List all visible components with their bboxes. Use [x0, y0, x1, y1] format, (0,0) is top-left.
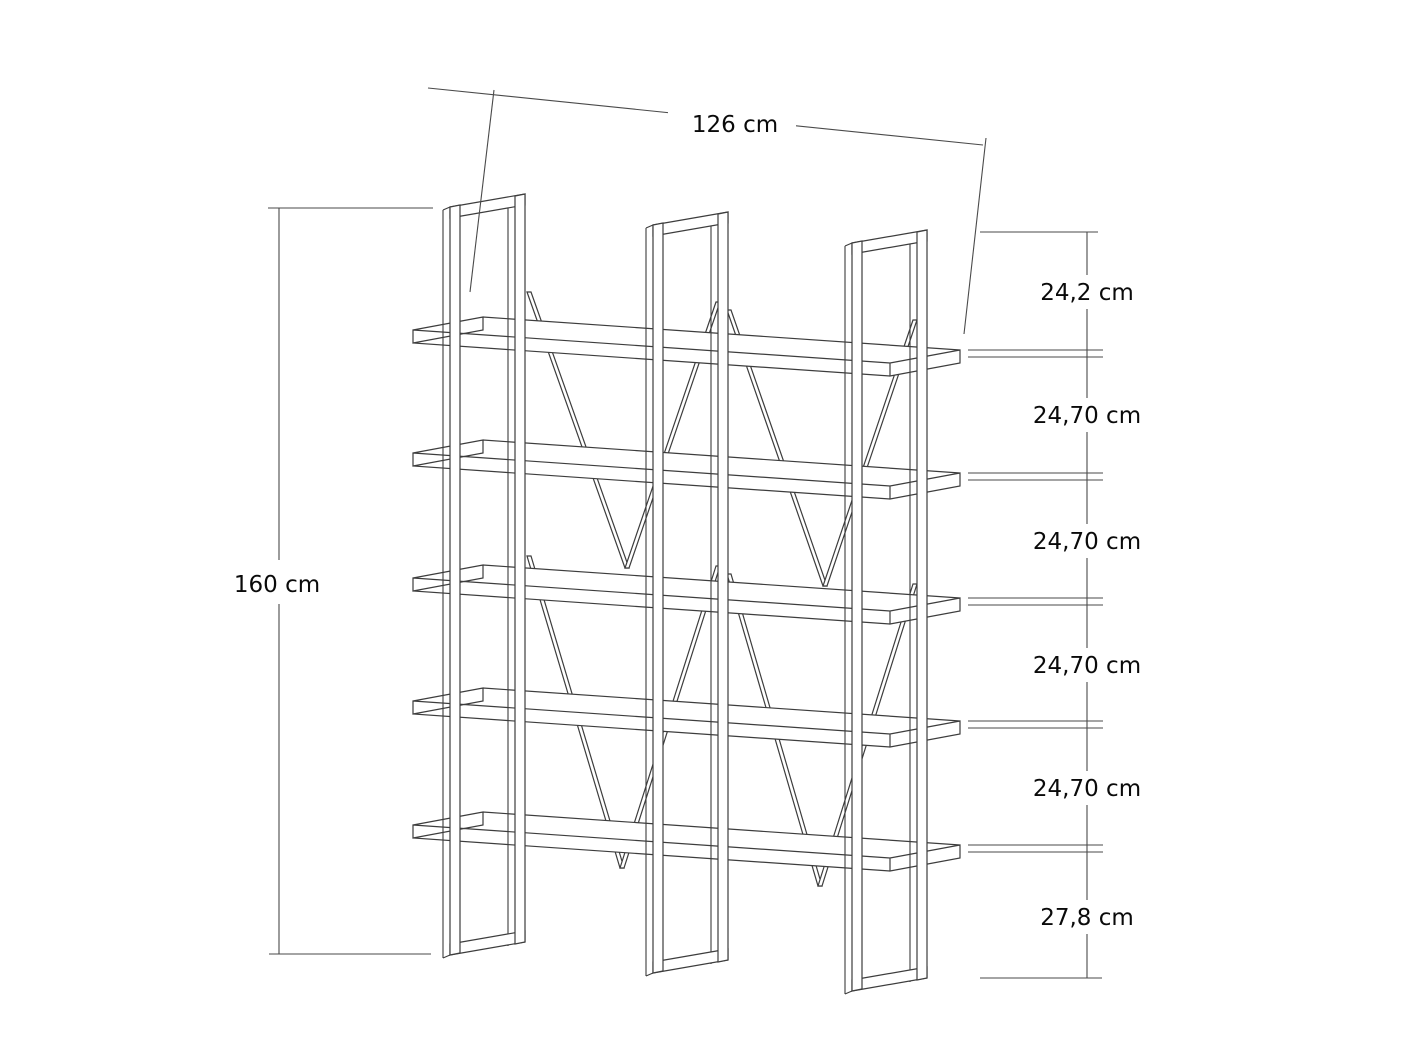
- spacing-tick-shelf2: [968, 473, 1103, 480]
- spacing-label-2: 24,70 cm: [1033, 403, 1141, 429]
- frame-right-top-bar: [852, 230, 927, 254]
- drawing-sheet: 126 cm 160 cm 24,2 cm 24,70 cm 24,70 cm …: [0, 0, 1407, 1055]
- frame-left-front-post: [450, 205, 460, 955]
- width-extension-line-right: [964, 138, 986, 334]
- shelf-1: [413, 317, 960, 376]
- spacing-tick-shelf3: [968, 598, 1103, 605]
- frame-left-back-post: [515, 194, 525, 944]
- frame-left-top-bar: [450, 194, 525, 218]
- shelf-2: [413, 440, 960, 499]
- spacing-tick-shelf4: [968, 721, 1103, 728]
- spacing-label-6: 27,8 cm: [1040, 905, 1134, 931]
- frame-middle-bottom-bar: [653, 949, 728, 973]
- frame-right-front-post: [852, 241, 862, 991]
- width-extension-line-left: [470, 90, 494, 292]
- spacing-tick-shelf1: [968, 350, 1103, 357]
- frame-right-back-post: [917, 230, 927, 980]
- frame-middle-front-post: [653, 223, 663, 973]
- spacing-label-5: 24,70 cm: [1033, 776, 1141, 802]
- shelf-spacing-dimensions: 24,2 cm 24,70 cm 24,70 cm 24,70 cm 24,70…: [968, 232, 1151, 978]
- shelf-3: [413, 565, 960, 624]
- height-dimension: 160 cm: [228, 208, 433, 954]
- spacing-label-1: 24,2 cm: [1040, 280, 1134, 306]
- width-dimension-label: 126 cm: [692, 112, 778, 138]
- frame-left-bottom-bar: [450, 931, 525, 955]
- spacing-label-4: 24,70 cm: [1033, 653, 1141, 679]
- bookcase-technical-drawing: 126 cm 160 cm 24,2 cm 24,70 cm 24,70 cm …: [0, 0, 1407, 1055]
- width-dimension: 126 cm: [428, 88, 986, 334]
- frame-right-bottom-bar: [852, 967, 927, 991]
- shelf-5: [413, 812, 960, 871]
- frame-middle-top-bar: [653, 212, 728, 236]
- frame-middle-back-post: [718, 212, 728, 962]
- spacing-label-3: 24,70 cm: [1033, 529, 1141, 555]
- spacing-tick-shelf5: [968, 845, 1103, 852]
- height-dimension-label: 160 cm: [234, 572, 320, 598]
